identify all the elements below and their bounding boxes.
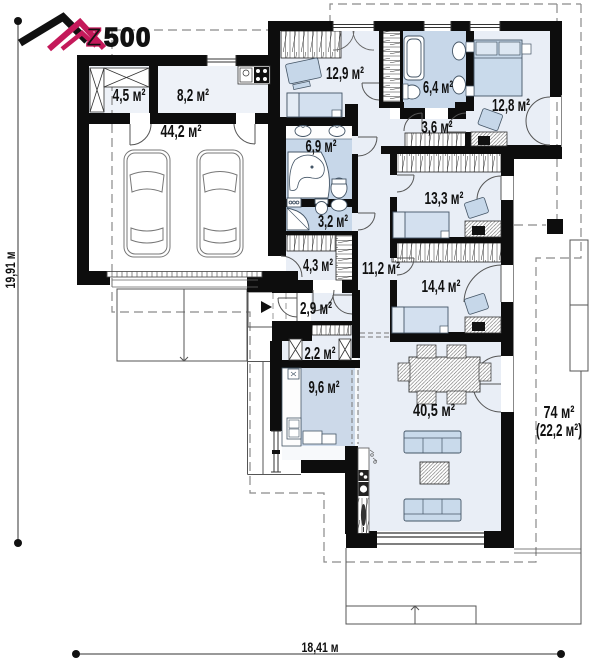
svg-text:4,5 м²: 4,5 м² — [113, 85, 146, 105]
svg-text:2,2 м²: 2,2 м² — [305, 343, 336, 363]
svg-text:40,5 м²: 40,5 м² — [413, 400, 455, 420]
svg-text:74 м²: 74 м² — [544, 402, 575, 422]
svg-text:6,9 м²: 6,9 м² — [306, 136, 337, 156]
svg-text:13,3 м²: 13,3 м² — [425, 188, 464, 208]
svg-text:12,9 м²: 12,9 м² — [326, 63, 364, 83]
svg-text:2,9 м²: 2,9 м² — [300, 298, 332, 318]
svg-text:19,91 м: 19,91 м — [3, 251, 18, 288]
svg-text:8,2 м²: 8,2 м² — [177, 85, 209, 105]
svg-text:500: 500 — [104, 22, 152, 52]
svg-text:11,2 м²: 11,2 м² — [362, 258, 400, 278]
svg-text:18,41 м: 18,41 м — [302, 640, 339, 655]
svg-text:44,2 м²: 44,2 м² — [161, 121, 202, 141]
svg-text:Z: Z — [86, 22, 102, 52]
svg-text:9,6 м²: 9,6 м² — [309, 377, 340, 397]
svg-text:3,6 м²: 3,6 м² — [422, 117, 453, 137]
svg-text:(22,2 м²): (22,2 м²) — [536, 420, 582, 440]
svg-text:3,2 м²: 3,2 м² — [318, 211, 348, 231]
svg-text:12,8 м²: 12,8 м² — [492, 95, 530, 115]
svg-text:4,3 м²: 4,3 м² — [303, 255, 333, 275]
svg-text:6,4 м²: 6,4 м² — [423, 77, 453, 97]
svg-text:14,4 м²: 14,4 м² — [422, 276, 461, 296]
